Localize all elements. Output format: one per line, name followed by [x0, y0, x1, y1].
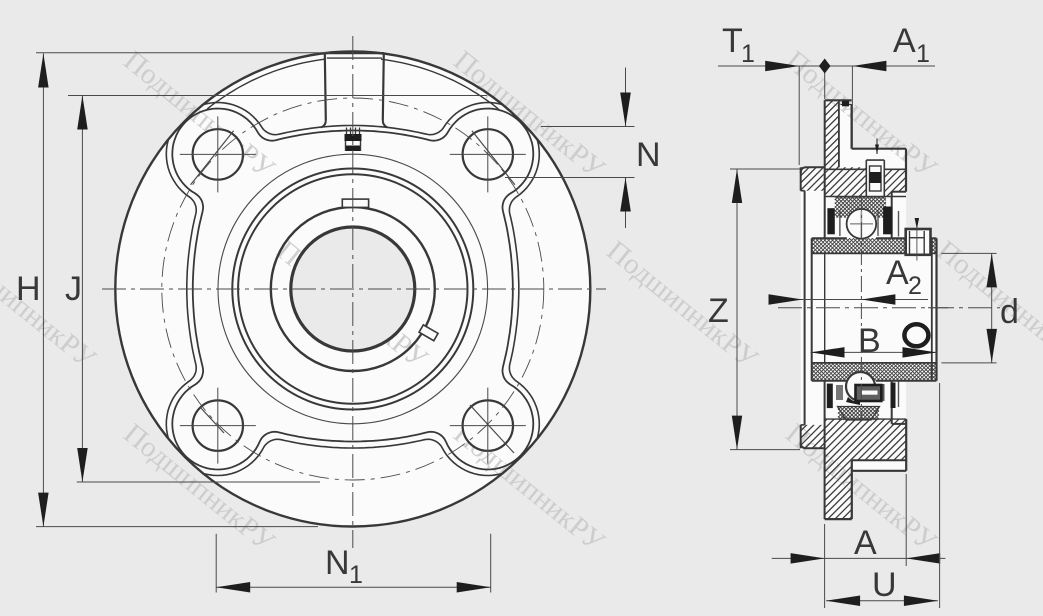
svg-text:1: 1 [349, 561, 363, 589]
svg-text:Z: Z [708, 292, 729, 330]
svg-text:A: A [893, 22, 916, 60]
svg-text:1: 1 [741, 40, 755, 68]
svg-text:U: U [872, 566, 897, 604]
svg-text:d: d [1000, 293, 1019, 331]
svg-text:A: A [854, 524, 877, 562]
svg-text:N: N [636, 136, 661, 174]
svg-text:1: 1 [916, 40, 930, 68]
svg-text:B: B [858, 322, 881, 360]
svg-text:J: J [65, 270, 82, 308]
svg-text:2: 2 [908, 272, 922, 300]
svg-text:A: A [886, 254, 909, 292]
svg-text:T: T [722, 22, 743, 60]
svg-text:H: H [16, 270, 41, 308]
svg-text:N: N [325, 544, 350, 582]
